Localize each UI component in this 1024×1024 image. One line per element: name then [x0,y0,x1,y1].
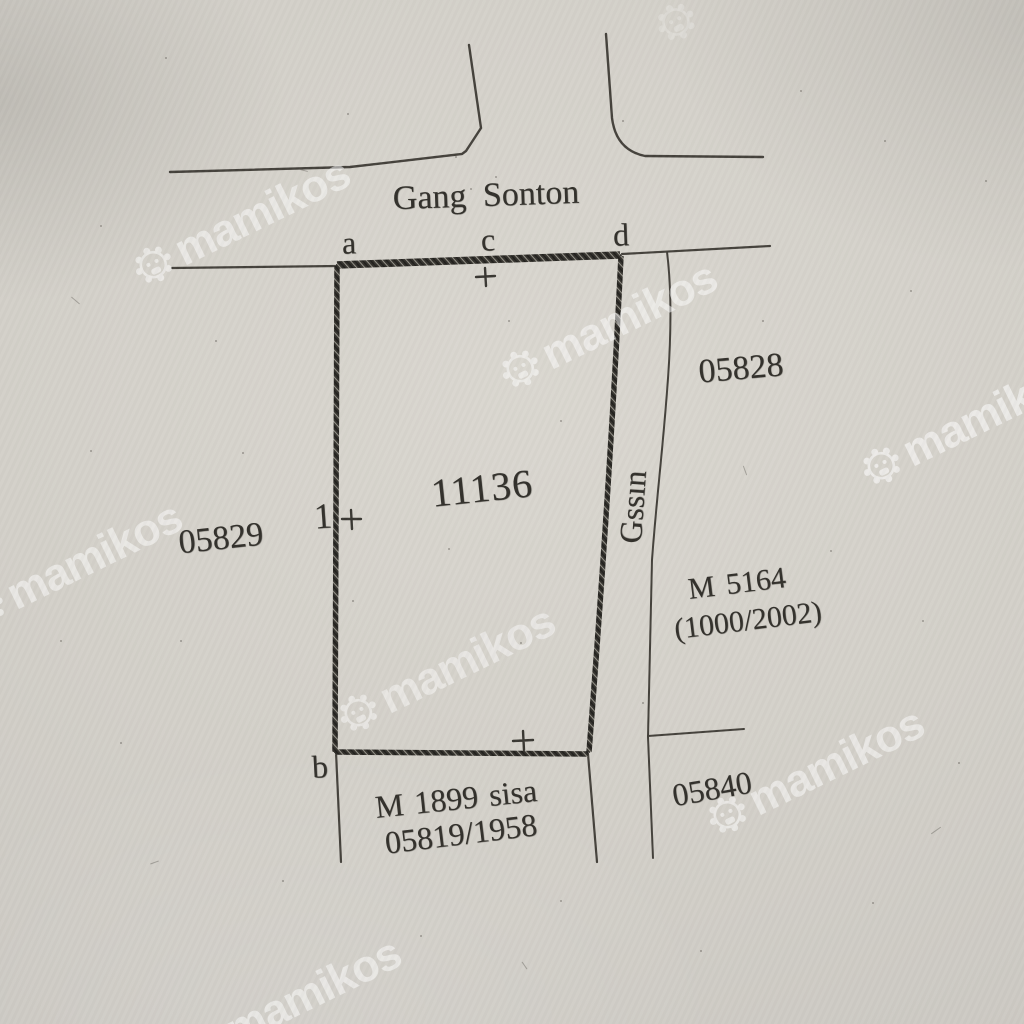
boundary-line-east-of-d [622,246,770,254]
corner-label-d: d [612,216,629,254]
road-edge-south [172,266,338,268]
alley-branch-line [648,729,744,736]
boundary-below-b [336,752,341,862]
alley-line-east [648,252,670,858]
road-edge-north-left [170,45,481,172]
corner-label-b: b [311,748,329,786]
parcel-edge-top [337,255,620,265]
survey-line-drawing [0,0,1024,1024]
road-edge-north-right [606,34,763,157]
corner-label-a: a [341,224,356,261]
parcel-edge-bottom [335,752,588,754]
survey-mark-plus-c [476,268,495,286]
parcel-edge-left [335,266,337,752]
alley-name-vertical: Gssın [612,469,654,544]
survey-mark-plus-b [513,731,533,750]
survey-mark-plus-1 [342,510,361,529]
corner-label-c: c [480,221,495,258]
street-name: Gang Sonton [392,174,580,218]
boundary-point-label-1: 1 [313,494,334,537]
neighbor-parcel-05828: 05828 [697,346,785,391]
alley-line-west-lower [588,754,597,862]
scanned-survey-photo: Gang Sonton a c d b 11136 1 05829 05828 … [0,0,1024,1024]
